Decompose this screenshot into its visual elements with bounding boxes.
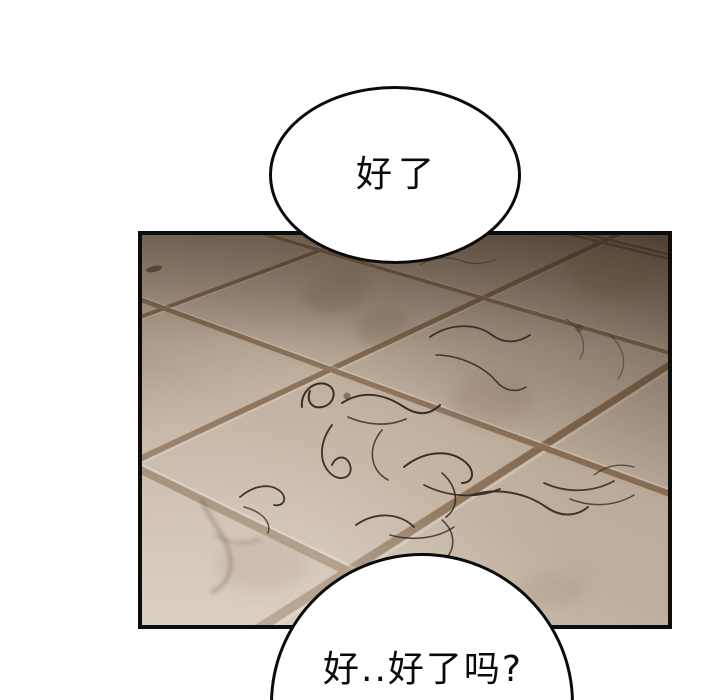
speech-text-top: 好了 [350,157,440,193]
speech-bubble-top: 好了 [269,86,521,264]
comic-page: 好了 好..好了吗? [0,0,720,700]
speech-text-bottom: 好..好了吗? [273,652,571,688]
